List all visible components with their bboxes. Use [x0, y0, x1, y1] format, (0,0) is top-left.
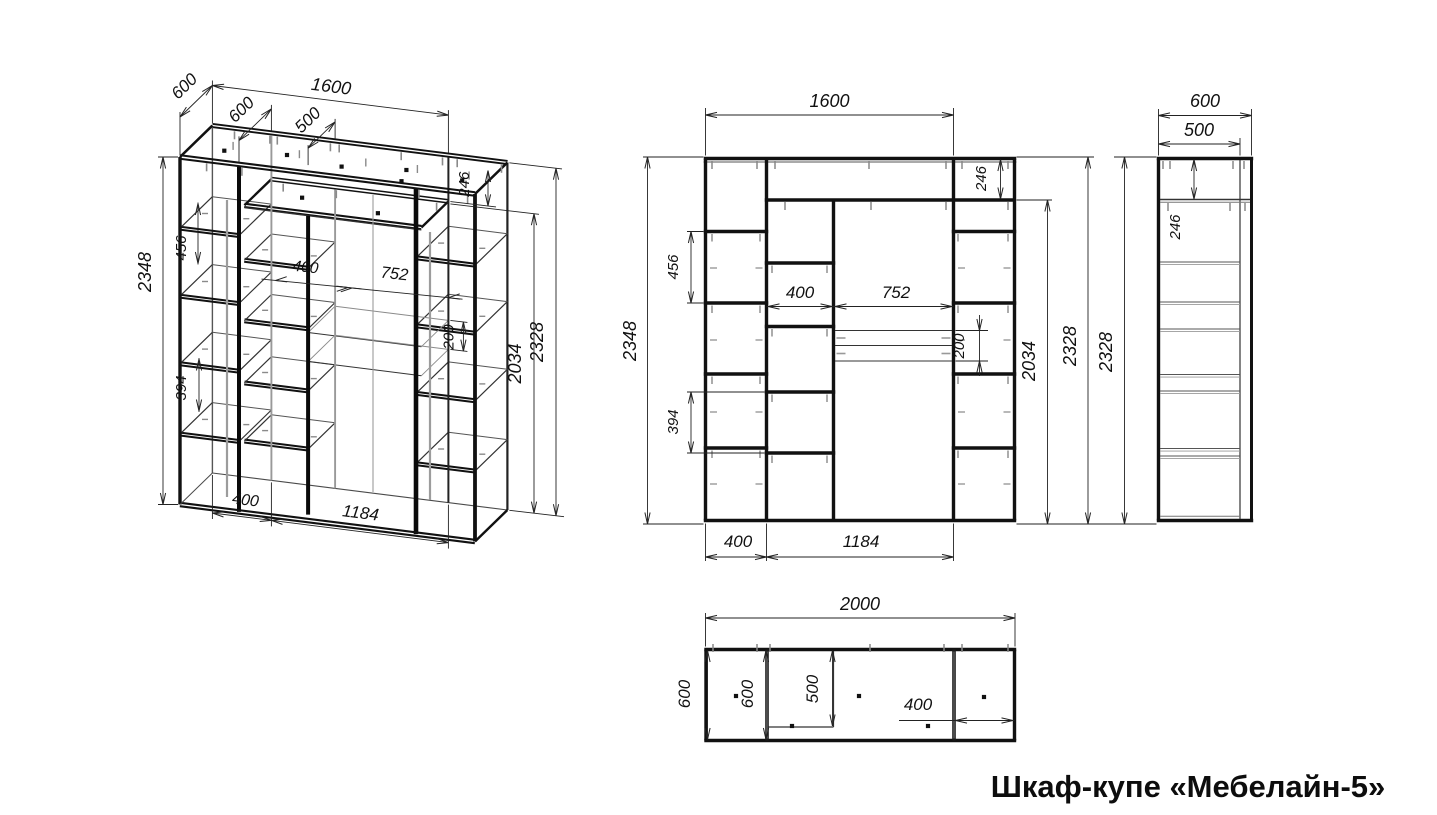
svg-text:2328: 2328 [1060, 326, 1080, 367]
svg-text:752: 752 [380, 264, 409, 285]
svg-text:2034: 2034 [1019, 341, 1039, 382]
svg-text:2034: 2034 [505, 343, 525, 384]
svg-text:394: 394 [665, 409, 682, 434]
svg-text:246: 246 [1167, 214, 1184, 241]
svg-text:600: 600 [1190, 91, 1220, 111]
svg-text:200: 200 [951, 333, 968, 360]
svg-text:400: 400 [786, 283, 815, 302]
svg-text:752: 752 [882, 283, 911, 302]
svg-text:600: 600 [675, 679, 694, 708]
svg-text:400: 400 [292, 258, 320, 278]
svg-text:1600: 1600 [809, 91, 849, 111]
svg-text:2328: 2328 [1096, 332, 1116, 373]
svg-text:246: 246 [973, 165, 990, 192]
svg-text:394: 394 [173, 375, 190, 400]
svg-text:500: 500 [803, 674, 822, 703]
svg-text:Шкаф-купе «Мебелайн-5»: Шкаф-купе «Мебелайн-5» [991, 769, 1386, 804]
svg-text:500: 500 [1184, 120, 1214, 140]
svg-text:246: 246 [456, 171, 473, 198]
svg-text:200: 200 [440, 324, 457, 351]
svg-text:456: 456 [173, 235, 190, 261]
svg-text:456: 456 [665, 254, 682, 280]
svg-text:2000: 2000 [839, 594, 880, 614]
svg-text:2348: 2348 [135, 252, 155, 293]
svg-text:2328: 2328 [527, 322, 547, 363]
svg-text:400: 400 [724, 532, 753, 551]
svg-text:600: 600 [738, 679, 757, 708]
svg-text:1184: 1184 [843, 532, 880, 551]
svg-text:2348: 2348 [620, 321, 640, 362]
svg-text:400: 400 [231, 490, 260, 510]
svg-text:400: 400 [904, 695, 933, 714]
